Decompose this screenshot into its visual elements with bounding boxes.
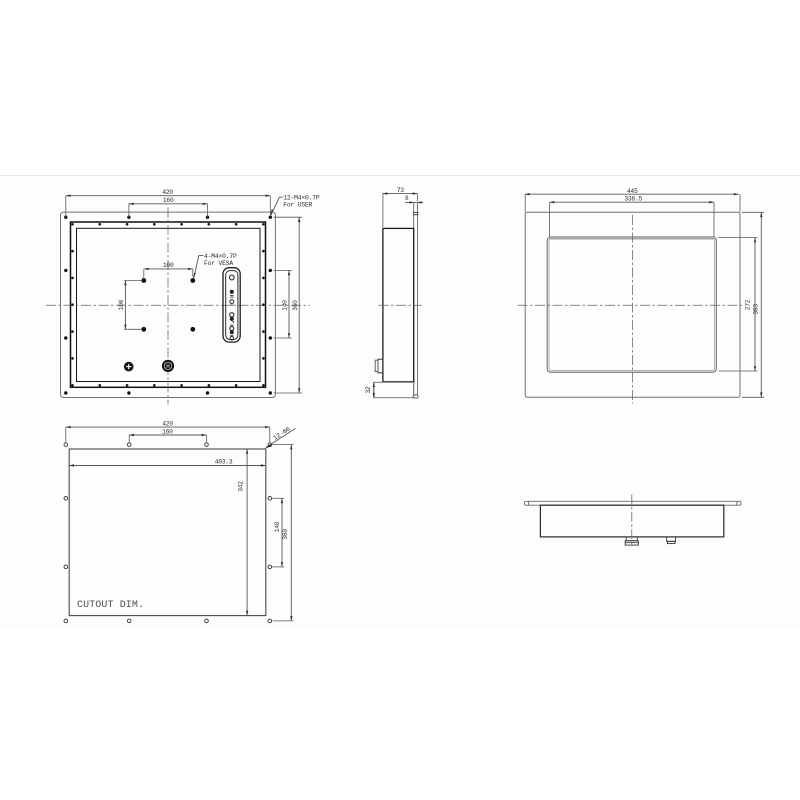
svg-text:100: 100 xyxy=(118,299,125,310)
svg-text:420: 420 xyxy=(162,421,173,428)
svg-text:272: 272 xyxy=(744,299,751,310)
svg-text:160: 160 xyxy=(163,197,174,204)
svg-text:360: 360 xyxy=(292,300,299,311)
svg-text:140: 140 xyxy=(282,300,289,311)
svg-text:338.5: 338.5 xyxy=(624,195,642,202)
svg-text:403.3: 403.3 xyxy=(215,459,233,466)
svg-text:32: 32 xyxy=(365,386,372,393)
svg-text:CUTOUT DIM.: CUTOUT DIM. xyxy=(77,600,144,611)
svg-text:8: 8 xyxy=(405,195,409,202)
svg-text:For VESA: For VESA xyxy=(204,260,233,267)
svg-text:360: 360 xyxy=(282,529,289,540)
svg-text:445: 445 xyxy=(627,188,638,195)
svg-text:140: 140 xyxy=(274,521,281,532)
svg-text:4-M4×0.7P: 4-M4×0.7P xyxy=(204,253,237,260)
svg-text:73: 73 xyxy=(397,187,405,194)
svg-text:For USER: For USER xyxy=(283,202,312,209)
svg-text:383: 383 xyxy=(752,304,759,315)
svg-text:420: 420 xyxy=(162,189,173,196)
svg-text:100: 100 xyxy=(163,262,174,269)
svg-text:12-M4×0.7P: 12-M4×0.7P xyxy=(283,195,320,202)
svg-text:160: 160 xyxy=(162,428,173,435)
svg-text:342: 342 xyxy=(237,481,244,492)
